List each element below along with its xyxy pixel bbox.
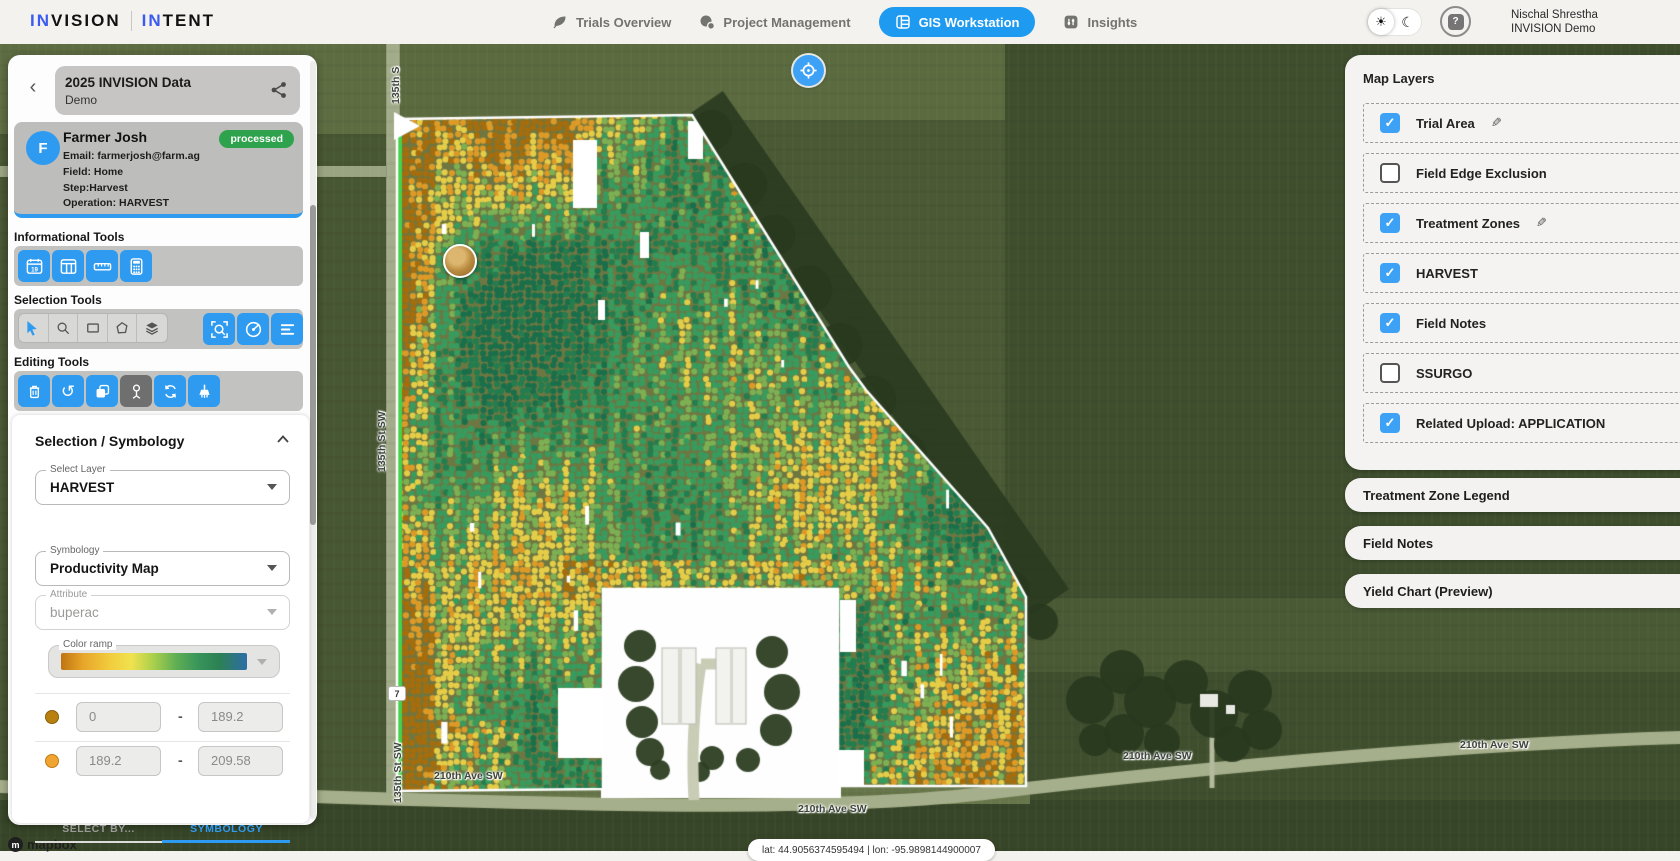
map-layers-panel: Map Layers Trial Area Field Edge Exclusi… [1345,55,1680,470]
informational-toolbar: 19 [14,246,303,286]
zoom-select-button[interactable] [203,313,235,345]
edit-pencil-icon[interactable] [1536,215,1547,231]
light-mode-icon[interactable]: ☀ [1368,9,1394,35]
farmer-email: Email: farmerjosh@farm.ag [63,150,200,162]
user-name: Nischal Shrestha [1511,8,1680,22]
attribute-value: buperac [50,605,99,620]
highway-7-shield: 7 [388,686,406,701]
nav-project-management[interactable]: Project Management [699,14,850,30]
range-1-max-input[interactable]: 189.2 [198,702,283,732]
locate-button[interactable] [793,55,824,86]
calendar-tool-button[interactable]: 19 [18,250,50,282]
theme-toggle[interactable]: ☀ ☾ [1367,8,1422,36]
street-label-210th-4: 210th Ave SW [1460,739,1529,751]
range-separator: - [178,708,183,724]
editing-tools-label: Editing Tools [14,355,89,369]
chevron-down-icon [257,659,267,665]
table-tool-button[interactable] [52,250,84,282]
farmer-card[interactable]: F Farmer Josh processed Email: farmerjos… [14,122,303,218]
logo-invision: INVISION [30,11,121,31]
layer-row-harvest[interactable]: HARVEST [1363,253,1680,293]
selection-symbology-card: Selection / Symbology Select Layer HARVE… [12,415,309,823]
related-upload-checkbox[interactable] [1380,413,1400,433]
left-sidebar: ‹ 2025 INVISION Data Demo F Farmer Josh … [8,55,317,825]
trial-area-checkbox[interactable] [1380,113,1400,133]
zoom-select-icon [210,320,229,339]
chevron-down-icon [267,609,277,615]
attribute-label: Attribute [46,589,91,600]
range-1-min-input[interactable]: 0 [76,702,161,732]
brush-icon [196,383,213,400]
app-header: INVISION INTENT Trials Overview Project … [0,0,1680,44]
project-icon [699,14,715,30]
calculator-tool-button[interactable] [120,250,152,282]
nav-trials-overview[interactable]: Trials Overview [552,14,671,30]
cursor-icon [26,321,40,336]
measure-tool-button[interactable] [86,250,118,282]
search-select-button[interactable] [49,314,79,342]
table-columns-icon [59,257,78,276]
farmer-step: Step:Harvest [63,182,128,194]
radius-select-button[interactable] [237,313,269,345]
back-button[interactable]: ‹ [22,77,44,99]
sidebar-scrollbar-thumb[interactable] [310,205,316,525]
range-separator: - [178,752,183,768]
street-label-135th-bottom: 135th St SW [392,742,404,803]
leaf-icon [552,14,568,30]
crosshair-icon [800,62,817,79]
user-info[interactable]: Nischal Shrestha INVISION Demo [1511,8,1680,36]
street-label-135th-mid: 135th St SW [376,411,388,472]
yield-chart-preview-card[interactable]: Yield Chart (Preview) [1345,574,1680,608]
cursor-tool-button[interactable] [19,314,49,342]
symbology-dropdown[interactable]: Symbology Productivity Map [35,551,290,586]
street-label-210th-2: 210th Ave SW [798,803,867,815]
street-label-210th-3: 210th Ave SW [1123,750,1192,762]
polygon-select-icon [115,321,129,335]
symbology-panel-title: Selection / Symbology [35,433,184,449]
farmer-avatar: F [26,131,60,165]
map-layers-title: Map Layers [1363,71,1435,86]
undo-tool-button[interactable]: ↺ [52,375,84,407]
search-icon [56,321,70,335]
farmer-name: Farmer Josh [63,129,147,145]
treatment-zone-legend-card[interactable]: Treatment Zone Legend [1345,478,1680,512]
farmer-field: Field: Home [63,166,123,178]
divider [35,693,290,694]
sync-tool-button[interactable] [154,375,186,407]
range-2-min-input[interactable]: 189.2 [76,746,161,776]
divider [35,741,290,742]
layer-row-treatment-zones[interactable]: Treatment Zones [1363,203,1680,243]
user-org: INVISION Demo [1511,22,1680,36]
range-2-color-dot [45,754,59,768]
logo-divider [131,11,132,31]
layers-select-button[interactable] [137,314,167,342]
help-button[interactable]: ? [1440,6,1471,37]
layer-row-trial-area[interactable]: Trial Area [1363,103,1680,143]
field-edge-exclusion-checkbox[interactable] [1380,163,1400,183]
street-label-210th-1: 210th Ave SW [434,770,503,782]
selection-tools-label: Selection Tools [14,293,102,307]
selection-toolbar [14,309,303,349]
farmer-operation: Operation: HARVEST [63,197,169,209]
copy-tool-button[interactable] [86,375,118,407]
range-1-color-dot [45,710,59,724]
brush-tool-button[interactable] [188,375,220,407]
range-2-max-input[interactable]: 209.58 [198,746,283,776]
tab-symbology[interactable]: SYMBOLOGY [163,817,290,841]
list-select-button[interactable] [271,313,303,345]
chevron-down-icon [267,484,277,490]
nav-insights[interactable]: Insights [1063,14,1137,30]
app-logo: INVISION INTENT [30,11,215,31]
undo-icon: ↺ [61,383,75,400]
rectangle-select-icon [86,321,100,335]
select-layer-dropdown[interactable]: Select Layer HARVEST [35,470,290,505]
ruler-icon [93,257,112,276]
field-notes-card[interactable]: Field Notes [1345,526,1680,560]
harvest-checkbox[interactable] [1380,263,1400,283]
mapbox-logo-icon: m [8,837,23,852]
chevron-down-icon [267,565,277,571]
main-nav: Trials Overview Project Management GIS W… [552,7,1137,37]
nav-gis-workstation[interactable]: GIS Workstation [879,7,1036,37]
symbology-value: Productivity Map [50,561,159,576]
tabs-underline-active [162,840,290,843]
color-ramp-dropdown[interactable]: Color ramp [48,645,280,678]
layers-icon [145,321,159,335]
informational-tools-label: Informational Tools [14,230,124,244]
polygon-select-button[interactable] [108,314,138,342]
calculator-icon [127,257,146,276]
treatment-zones-checkbox[interactable] [1380,213,1400,233]
grid-icon [895,14,911,30]
help-icon: ? [1448,14,1464,30]
list-select-icon [278,320,297,339]
layer-row-ssurgo[interactable]: SSURGO [1363,353,1680,393]
layer-row-related-upload[interactable]: Related Upload: APPLICATION [1363,403,1680,443]
radius-select-icon [244,320,263,339]
tab-select-by[interactable]: SELECT BY... [35,817,162,841]
select-layer-label: Select Layer [46,464,110,475]
field-notes-checkbox[interactable] [1380,313,1400,333]
sync-icon [162,383,179,400]
delete-tool-button[interactable] [18,375,50,407]
svg-text:19: 19 [31,266,38,273]
ssurgo-checkbox[interactable] [1380,363,1400,383]
dark-mode-icon[interactable]: ☾ [1394,14,1421,31]
attribute-dropdown[interactable]: Attribute buperac [35,595,290,630]
share-icon[interactable] [270,81,288,99]
select-layer-value: HARVEST [50,480,114,495]
trash-icon [26,383,43,400]
selection-mode-group [18,313,168,343]
trial-header-card[interactable]: 2025 INVISION Data Demo [55,66,300,115]
collapse-chevron-icon[interactable] [277,435,289,443]
color-ramp-label: Color ramp [59,639,116,650]
layer-row-field-notes[interactable]: Field Notes [1363,303,1680,343]
street-label-135th-top: 135th S [390,67,402,104]
editing-toolbar: ↺ [14,371,303,411]
symbology-label: Symbology [46,545,103,556]
vertex-tool-button[interactable] [120,375,152,407]
logo-intent: INTENT [142,11,215,31]
trial-subtitle: Demo [65,93,97,107]
vertex-tool-icon [128,383,145,400]
insights-icon [1063,14,1079,30]
status-badge: processed [219,130,294,148]
calendar-19-icon: 19 [25,257,44,276]
trial-title: 2025 INVISION Data [65,75,191,90]
edit-pencil-icon[interactable] [1491,115,1502,131]
rectangle-select-button[interactable] [78,314,108,342]
field-photo-marker[interactable] [443,244,477,278]
coordinate-readout: lat: 44.9056374595494 | lon: -95.9898144… [748,839,995,861]
copy-icon [94,383,111,400]
color-ramp-gradient [61,653,247,670]
layer-row-field-edge-exclusion[interactable]: Field Edge Exclusion [1363,153,1680,193]
